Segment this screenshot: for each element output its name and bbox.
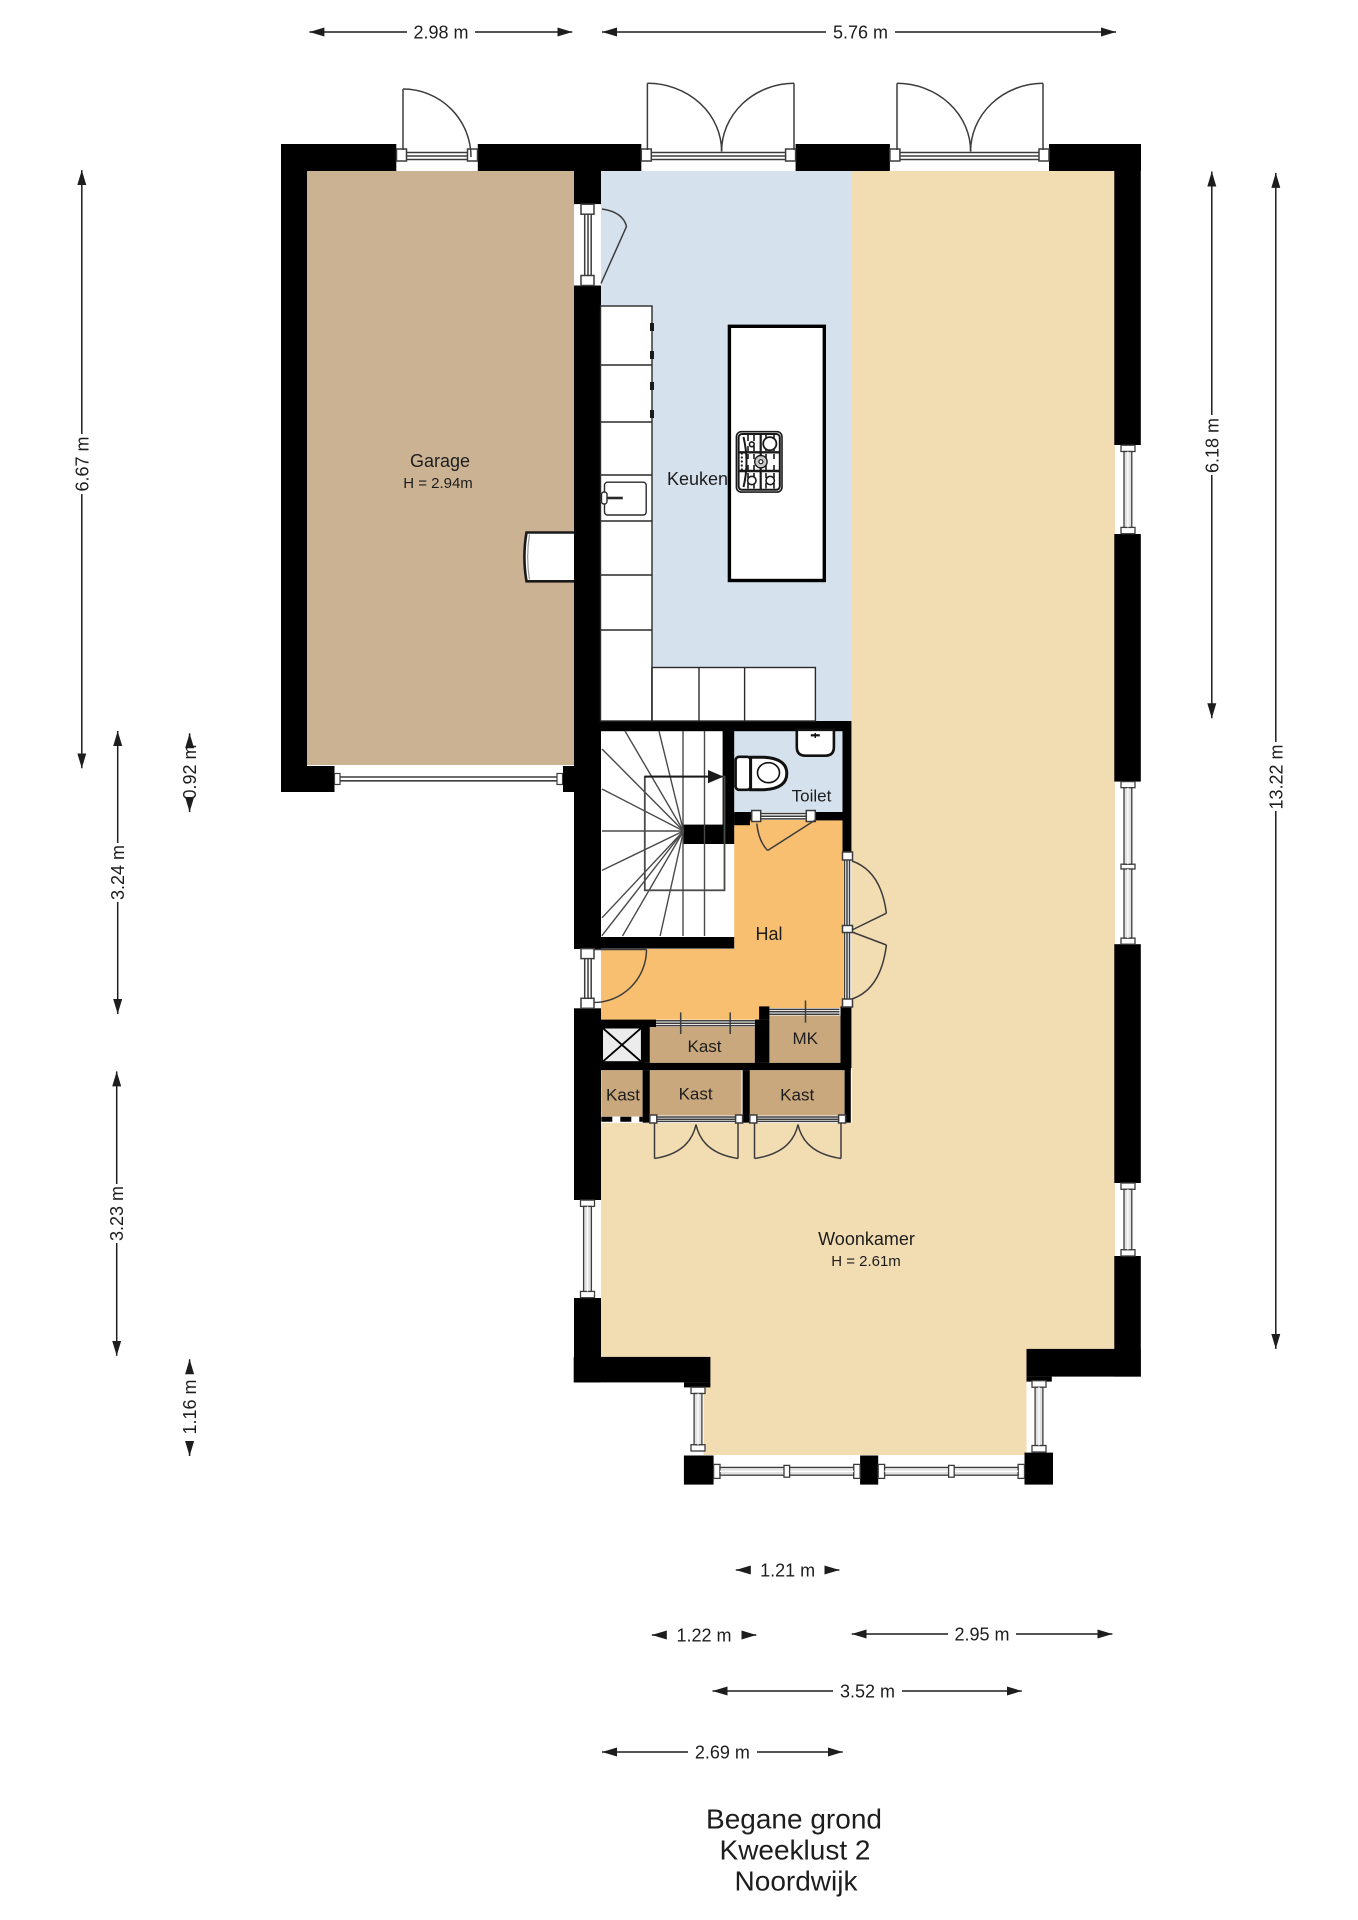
svg-text:Begane grond: Begane grond [706, 1804, 882, 1835]
svg-text:Toilet: Toilet [792, 787, 832, 806]
svg-text:Hal: Hal [755, 924, 782, 944]
svg-text:3.52 m: 3.52 m [840, 1682, 895, 1702]
svg-text:2.69 m: 2.69 m [695, 1743, 750, 1763]
svg-text:1.22 m: 1.22 m [676, 1626, 731, 1646]
svg-text:1.21 m: 1.21 m [760, 1561, 815, 1581]
svg-text:Kast: Kast [687, 1037, 721, 1056]
svg-text:Kast: Kast [780, 1086, 814, 1105]
svg-text:Garage: Garage [410, 451, 470, 471]
svg-text:1.16 m: 1.16 m [180, 1379, 200, 1434]
svg-text:H = 2.94m: H = 2.94m [403, 475, 473, 492]
svg-text:Kast: Kast [606, 1086, 640, 1105]
svg-text:Kast: Kast [679, 1085, 713, 1104]
svg-text:6.18 m: 6.18 m [1202, 418, 1222, 473]
svg-text:13.22 m: 13.22 m [1266, 744, 1286, 809]
svg-text:Kweeklust 2: Kweeklust 2 [720, 1835, 871, 1866]
svg-text:2.98 m: 2.98 m [413, 23, 468, 43]
svg-text:0.92 m: 0.92 m [180, 744, 200, 799]
svg-text:Woonkamer: Woonkamer [818, 1229, 915, 1249]
svg-text:H = 2.61m: H = 2.61m [831, 1253, 901, 1270]
svg-text:2.95 m: 2.95 m [954, 1625, 1009, 1645]
svg-text:5.76 m: 5.76 m [833, 23, 888, 43]
svg-text:Keuken: Keuken [667, 469, 728, 489]
svg-text:MK: MK [792, 1029, 818, 1048]
svg-text:3.23 m: 3.23 m [107, 1186, 127, 1241]
svg-text:6.67 m: 6.67 m [72, 436, 92, 491]
svg-text:Noordwijk: Noordwijk [735, 1866, 859, 1897]
svg-text:3.24 m: 3.24 m [108, 845, 128, 900]
